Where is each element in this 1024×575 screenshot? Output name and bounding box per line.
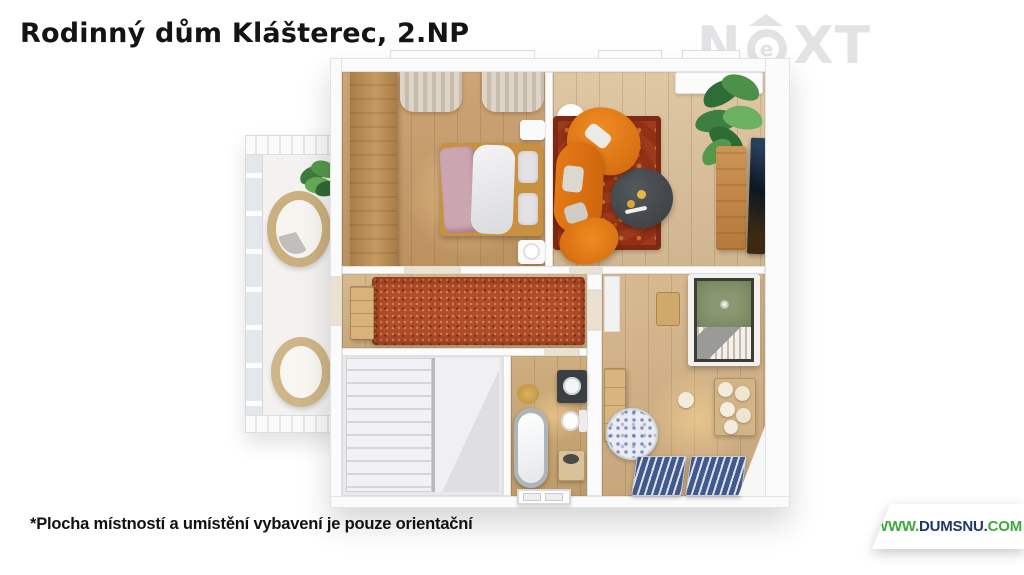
- wicker-chair: [271, 337, 331, 407]
- wall: [602, 266, 765, 274]
- disclaimer-note: *Plocha místností a umístění vybavení je…: [30, 514, 473, 534]
- room-living: [553, 72, 765, 268]
- bathroom-door: [545, 348, 579, 356]
- url-tld: COM: [988, 518, 1022, 535]
- blue-striped-bed: [631, 456, 687, 496]
- duvet: [470, 144, 515, 234]
- teddy-bear-icon: [724, 420, 738, 434]
- wall: [587, 330, 602, 496]
- green-canopy-bed: [688, 274, 760, 366]
- sofa-cushion: [562, 165, 585, 193]
- url-domain: DUMSNU.: [919, 518, 988, 535]
- toy-bench: [714, 378, 756, 436]
- pillow: [518, 193, 538, 225]
- curtains: [400, 72, 462, 112]
- canopy-light: [720, 300, 729, 309]
- floor-plan: [245, 58, 795, 508]
- wardrobe: [350, 72, 397, 268]
- teddy-bear-icon: [718, 382, 733, 397]
- kids-wardrobe: [604, 276, 620, 332]
- room-bathroom: [511, 356, 587, 496]
- wood-sideboard: [716, 146, 746, 250]
- teddy-bear-icon: [720, 402, 735, 417]
- balcony-railing-top: [245, 135, 337, 155]
- living-door: [570, 266, 602, 274]
- balcony-door: [330, 276, 342, 326]
- stairs: [346, 358, 432, 492]
- website-ribbon: WWW.DUMSNU.COM: [872, 504, 1024, 549]
- teddy-bear-icon: [736, 408, 751, 423]
- double-bed: [440, 143, 543, 236]
- wicker-chair: [267, 191, 331, 267]
- wall: [545, 72, 553, 268]
- bedroom-door: [405, 266, 460, 274]
- nightstand: [520, 120, 545, 140]
- stair-landing: [435, 358, 499, 492]
- roof-icon: [749, 14, 783, 26]
- round-rug: [517, 384, 539, 404]
- round-patterned-rug: [606, 408, 658, 460]
- wall: [579, 348, 587, 356]
- teddy-bear-icon: [735, 386, 750, 401]
- page-title: Rodinný dům Klášterec, 2.NP: [20, 18, 469, 49]
- red-shag-carpet: [372, 277, 585, 345]
- logo-letters-xt: XT: [794, 24, 872, 70]
- room-hallway: [342, 274, 587, 348]
- bottom-threshold: [517, 489, 571, 505]
- kids-room-door: [587, 290, 602, 330]
- room-balcony: [245, 135, 337, 433]
- blue-striped-bed: [685, 456, 747, 496]
- room-bedroom: [342, 72, 545, 268]
- toilet-icon: [561, 408, 587, 434]
- freestanding-bathtub: [514, 408, 548, 488]
- wall: [587, 274, 602, 290]
- sink: [563, 377, 581, 395]
- wall: [503, 356, 511, 496]
- chair-blanket: [278, 210, 314, 254]
- balcony-railing-bottom: [245, 415, 337, 433]
- url-www: WWW.: [874, 518, 919, 535]
- orange-curved-sofa: [555, 108, 645, 266]
- glass-railing: [245, 135, 263, 433]
- wall: [342, 266, 405, 274]
- website-url: WWW.DUMSNU.COM: [872, 504, 1024, 549]
- nightstand: [518, 240, 545, 264]
- wall: [330, 58, 790, 72]
- bathtub-inner: [518, 413, 544, 483]
- curtains: [482, 72, 544, 112]
- page: Rodinný dům Klášterec, 2.NP N e XT: [0, 0, 1024, 575]
- teddy-bear-icon: [678, 392, 694, 408]
- wall: [460, 266, 570, 274]
- round-lamp: [523, 243, 540, 260]
- laundry-box: [558, 450, 585, 481]
- house-outline: [330, 58, 790, 508]
- vanity-with-sink: [557, 370, 587, 403]
- wall: [342, 348, 545, 356]
- pillow: [518, 151, 538, 183]
- wall: [765, 58, 790, 508]
- small-cabinet: [350, 286, 374, 340]
- room-staircase: [342, 356, 503, 496]
- desk: [656, 292, 680, 326]
- room-kids: [602, 274, 765, 496]
